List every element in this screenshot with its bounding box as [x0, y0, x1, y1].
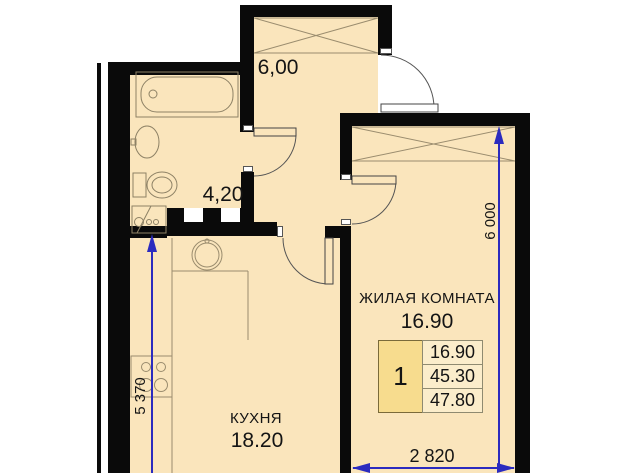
kitchen-name-label: КУХНЯ — [196, 411, 316, 428]
hallway-area-label: 6,00 — [243, 56, 313, 79]
dimension-5370-label: 5 370 — [133, 356, 149, 436]
dimension-6000-label: 6 000 — [483, 181, 499, 261]
toilet-icon — [133, 172, 177, 198]
living-room-area-label: 16.90 — [377, 310, 477, 333]
area-without-balcony-cell: 45.30 — [422, 364, 483, 389]
dimension-2820-label: 2 820 — [382, 447, 482, 467]
kitchen-sink-icon — [192, 239, 222, 270]
kitchen-area-label: 18.20 — [197, 429, 317, 452]
plan-linework — [0, 0, 640, 473]
total-area-cell: 47.80 — [422, 388, 483, 413]
floor-plan: 6,00 4,20 ЖИЛАЯ КОМНАТА 16.90 КУХНЯ 18.2… — [0, 0, 640, 473]
living-room-door — [352, 176, 396, 224]
living-area-cell: 16.90 — [422, 340, 483, 365]
kitchen-door — [283, 238, 333, 284]
hallway-wardrobe — [254, 18, 378, 53]
bathroom-area-label: 4,20 — [188, 183, 258, 206]
washbasin-icon — [131, 126, 159, 158]
washing-machine-icon — [132, 206, 166, 233]
bathroom-door — [254, 128, 296, 176]
dimension-line-5370 — [147, 234, 157, 473]
rooms-count-cell: 1 — [378, 340, 423, 413]
entrance-door — [381, 55, 438, 112]
living-wardrobe — [352, 127, 515, 161]
bathtub-icon — [136, 72, 238, 117]
living-room-name-label: ЖИЛАЯ КОМНАТА — [347, 291, 507, 308]
